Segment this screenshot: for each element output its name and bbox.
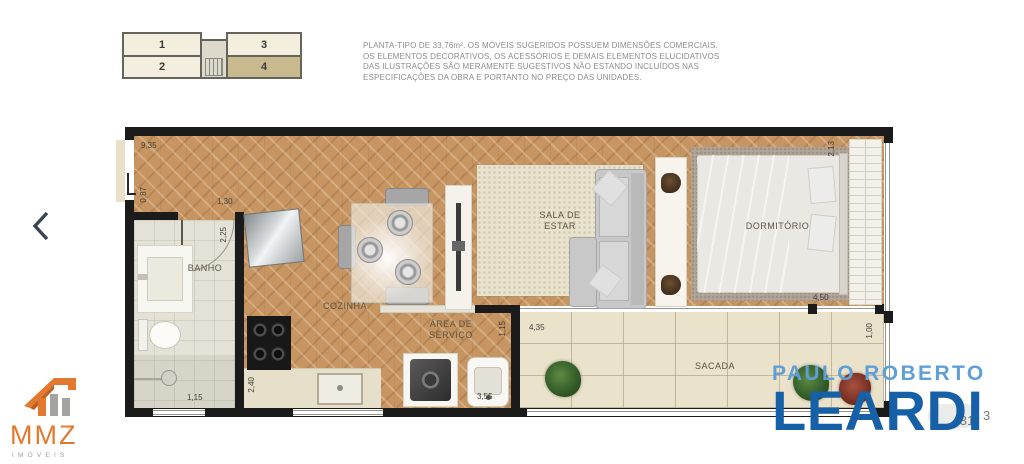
shower-arm xyxy=(134,378,164,380)
chevron-left-icon xyxy=(28,234,56,249)
kitchen-faucet xyxy=(337,385,343,391)
key-plan-unit-2: 2 xyxy=(122,55,202,79)
room-label-kitchen: COZINHA xyxy=(303,301,387,312)
sofa-backrest xyxy=(631,173,644,305)
place-setting xyxy=(357,237,383,263)
dim-kitchen-depth: 2,40 xyxy=(247,377,256,393)
room-label-bedroom: DORMITÓRIO xyxy=(705,221,850,232)
sink-faucet xyxy=(138,274,148,280)
mmz-logo: MMZ IMÓVEIS xyxy=(10,372,135,460)
dim-bedroom-window: 2,13 xyxy=(827,141,836,157)
disclaimer-line: OS ELEMENTOS DECORATIVOS, OS ACESSÓRIOS … xyxy=(363,52,719,63)
key-plan-unit-4-highlighted: 4 xyxy=(226,55,302,79)
leardi-logo: PAULO ROBERTO LEARDI xyxy=(772,362,1022,462)
dim-bedroom-width: 4,50 xyxy=(813,293,829,302)
dim-service-width: 3,55 xyxy=(477,392,493,401)
label-line: ÁREA DE xyxy=(430,319,473,329)
dim-balcony-depth: 1,00 xyxy=(865,323,874,339)
leardi-logo-line2: LEARDI xyxy=(772,386,1022,436)
room-label-bathroom: BANHO xyxy=(165,263,245,274)
unit-number: 1 xyxy=(159,39,165,51)
shower-head-icon xyxy=(161,370,177,386)
sofa-chaise xyxy=(569,237,597,307)
dim-balcony-width: 4,35 xyxy=(529,323,545,332)
place-setting xyxy=(395,259,421,285)
label-line: SERVIÇO xyxy=(429,330,473,340)
building-key-plan: 1 2 3 4 xyxy=(120,26,304,88)
carousel-prev-button[interactable] xyxy=(26,206,58,248)
tv-mount xyxy=(452,241,465,251)
bed-pillow xyxy=(807,214,837,253)
key-plan-unit-3: 3 xyxy=(226,32,302,57)
place-setting xyxy=(387,210,413,236)
mmz-logo-subtitle: IMÓVEIS xyxy=(12,452,69,459)
tub-basin xyxy=(474,367,502,395)
key-plan-unit-1: 1 xyxy=(122,32,202,57)
dim-entry: 0,87 xyxy=(139,187,148,203)
washer-drum xyxy=(410,359,451,401)
dim-hall: 1,30 xyxy=(217,197,233,206)
dim-service-depth: 1,15 xyxy=(498,321,507,337)
label-line: ESTAR xyxy=(544,221,576,231)
dim-bathroom-width: 1,15 xyxy=(187,393,203,402)
plant-icon xyxy=(545,361,581,397)
disclaimer-line: ESPECIFICAÇÕES DA OBRA E PORTANTO NO PRE… xyxy=(363,73,719,84)
room-label-balcony: SACADA xyxy=(670,361,760,372)
corridor-strip xyxy=(116,140,125,202)
unit-number: 4 xyxy=(261,61,267,73)
disclaimer-line: DAS ILUSTRAÇÕES SÃO MERAMENTE SUGESTIVOS… xyxy=(363,62,719,73)
room-label-service: ÁREA DE SERVIÇO xyxy=(407,319,495,341)
disclaimer-line: PLANTA-TIPO DE 33,76m². OS MÓVEIS SUGERI… xyxy=(363,41,719,52)
toilet-bowl xyxy=(149,321,181,349)
unit-number: 3 xyxy=(261,39,267,51)
cooktop xyxy=(247,316,291,370)
refrigerator xyxy=(243,208,304,268)
key-plan-stairs xyxy=(205,58,223,76)
mmz-logo-name: MMZ xyxy=(10,422,77,448)
dim-total-width: 9,35 xyxy=(141,141,157,150)
wardrobe xyxy=(849,139,882,305)
dim-bathroom-depth: 2,25 xyxy=(219,227,228,243)
unit-number: 2 xyxy=(159,61,165,73)
bed-pillow xyxy=(807,166,836,204)
room-label-living: SALA DE ESTAR xyxy=(500,210,620,232)
label-line: SALA DE xyxy=(539,210,580,220)
disclaimer-text: PLANTA-TIPO DE 33,76m². OS MÓVEIS SUGERI… xyxy=(363,41,719,83)
toilet-tank xyxy=(138,319,148,351)
